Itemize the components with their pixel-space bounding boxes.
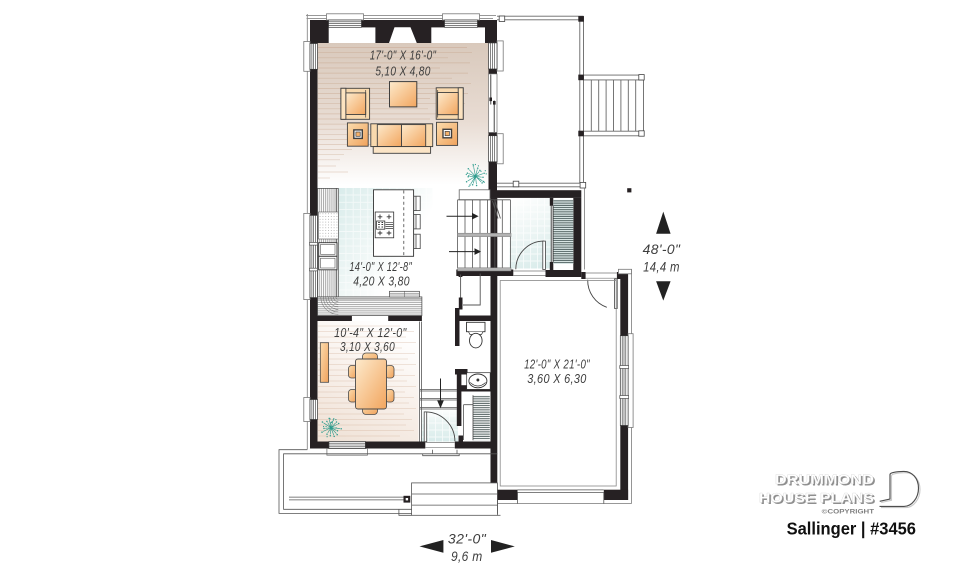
svg-text:14'-0" X 12'-8": 14'-0" X 12'-8" (349, 260, 412, 274)
svg-text:5,10 X 4,80: 5,10 X 4,80 (375, 64, 430, 78)
svg-text:4,20 X 3,80: 4,20 X 3,80 (353, 275, 410, 289)
svg-text:14,4 m: 14,4 m (643, 259, 680, 275)
svg-text:32'-0": 32'-0" (448, 531, 487, 547)
svg-text:HOUSE PLANS: HOUSE PLANS (759, 490, 874, 506)
svg-text:17'-0" X 16'-0": 17'-0" X 16'-0" (370, 49, 437, 63)
svg-text:Sallinger | #3456: Sallinger | #3456 (787, 518, 917, 538)
svg-text:3,10 X 3,60: 3,10 X 3,60 (340, 340, 395, 354)
svg-text:48'-0": 48'-0" (643, 241, 681, 257)
svg-text:9,6 m: 9,6 m (451, 548, 483, 564)
svg-text:12'-0" X 21'-0": 12'-0" X 21'-0" (524, 358, 590, 372)
svg-text:3,60 X 6,30: 3,60 X 6,30 (527, 372, 586, 386)
svg-text:10'-4" X 12'-0": 10'-4" X 12'-0" (334, 326, 407, 340)
svg-text:DRUMMOND: DRUMMOND (775, 471, 874, 487)
svg-text:©COPYRIGHT: ©COPYRIGHT (822, 507, 874, 515)
